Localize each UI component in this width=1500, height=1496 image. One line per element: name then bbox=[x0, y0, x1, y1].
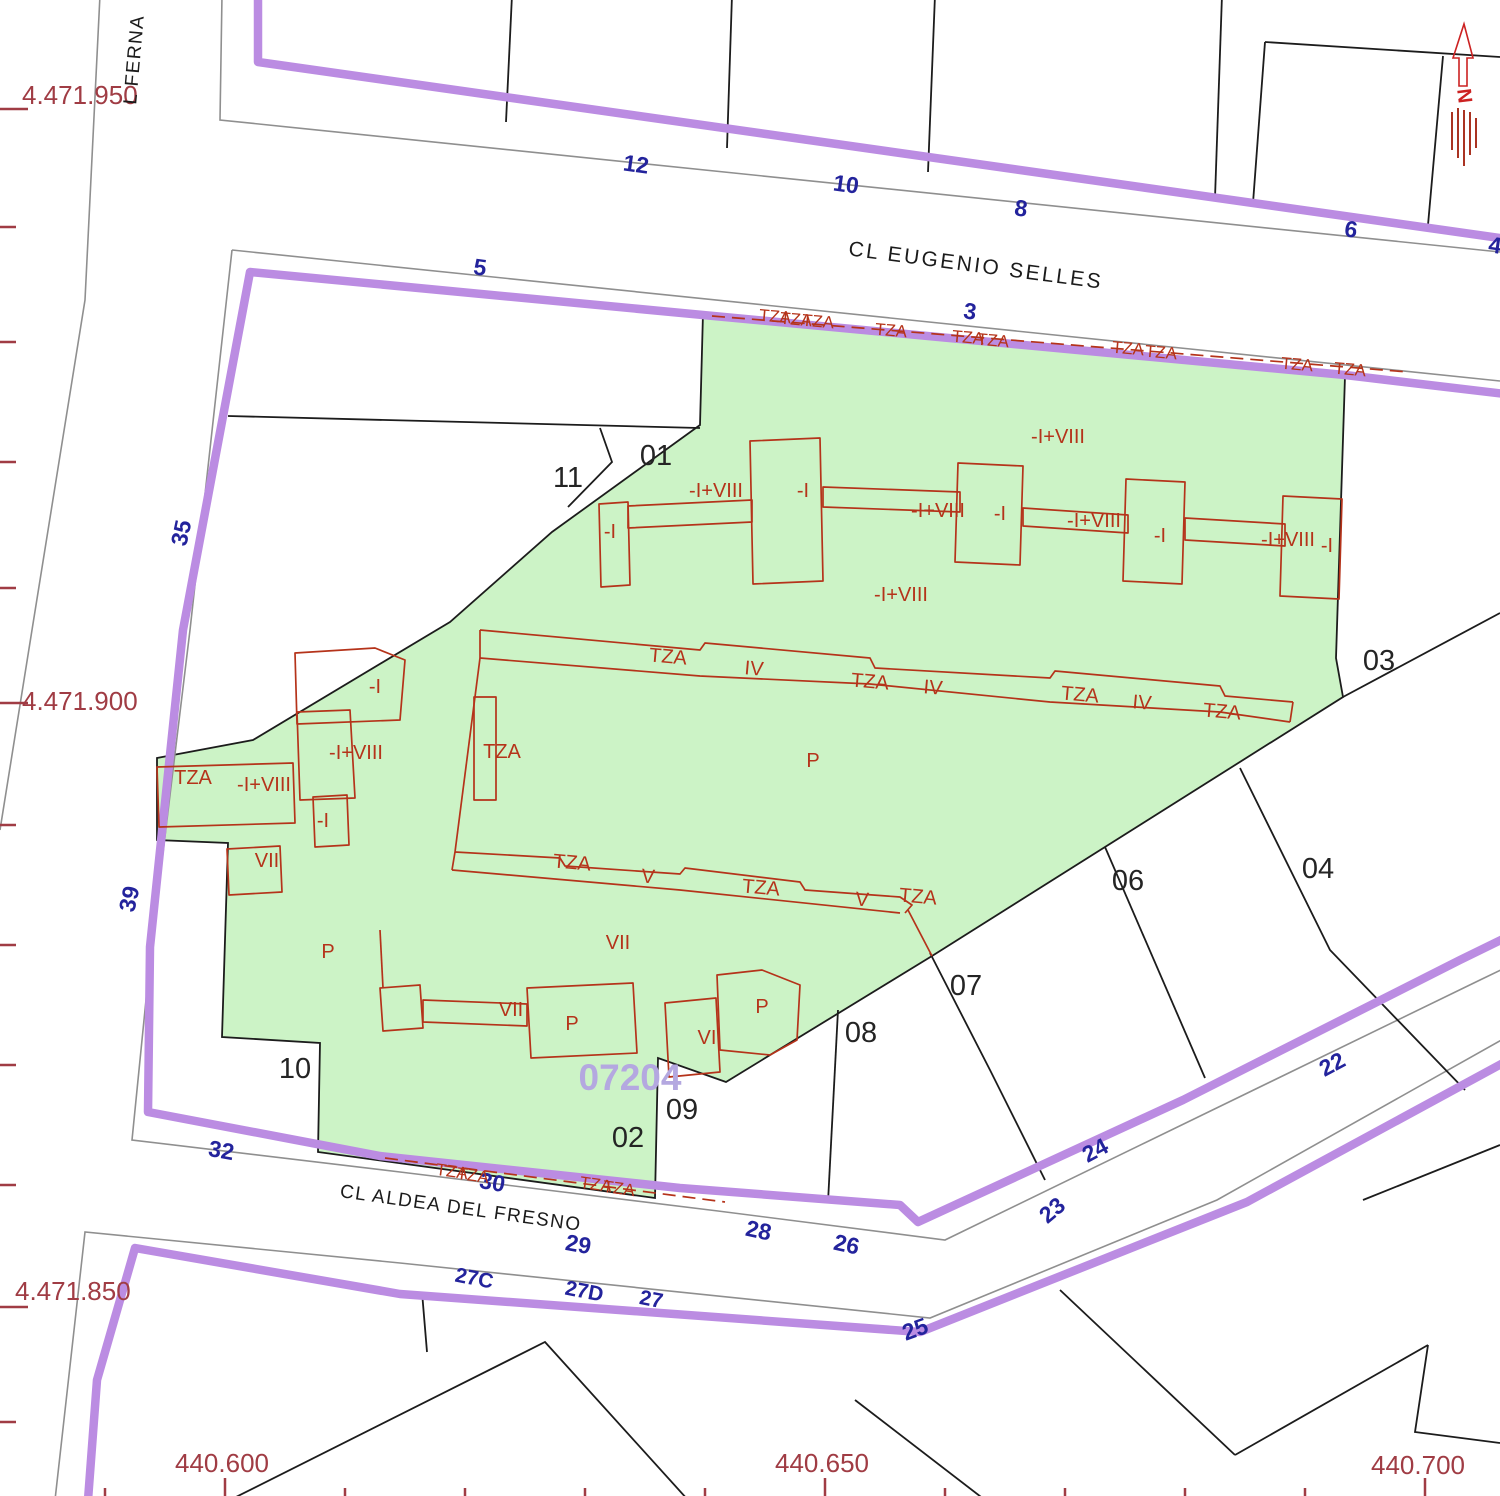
parcel-number-02: 02 bbox=[612, 1122, 644, 1154]
building-label: -I+VIII bbox=[1261, 529, 1315, 551]
parcel-number-10: 10 bbox=[279, 1053, 311, 1085]
parcel-number-09: 09 bbox=[666, 1094, 698, 1126]
parcel-line bbox=[1363, 1145, 1500, 1200]
building-label: -I+VIII bbox=[911, 500, 965, 522]
building-label: -I+VIII bbox=[1031, 426, 1085, 448]
address-number: 12 bbox=[622, 149, 651, 178]
building-label: TZA bbox=[898, 884, 938, 909]
address-number: 27D bbox=[563, 1277, 605, 1307]
building-label: VI bbox=[698, 1027, 717, 1049]
terrace-label: TZA bbox=[1144, 342, 1178, 364]
building-label: -I bbox=[1154, 525, 1166, 547]
address-number: 26 bbox=[831, 1229, 861, 1260]
street-name-eugenio-selles: CL EUGENIO SELLES bbox=[847, 237, 1104, 293]
building-label: P bbox=[755, 996, 768, 1018]
north-arrow: N bbox=[1452, 24, 1476, 166]
parcel-line bbox=[230, 1342, 688, 1496]
terrace-label: TZA bbox=[976, 330, 1010, 352]
building-label: IV bbox=[923, 676, 944, 700]
coordinate-label-x: 440.600 bbox=[175, 1448, 269, 1478]
building-label: -I+VIII bbox=[237, 774, 291, 796]
street-name-fernan: L FERNA bbox=[120, 14, 149, 106]
parcel-line bbox=[1253, 42, 1265, 203]
address-number: 6 bbox=[1343, 215, 1359, 243]
parcel-line bbox=[422, 1292, 427, 1352]
building-label: -I+VIII bbox=[329, 742, 383, 764]
terrace-label: TZA bbox=[801, 311, 835, 333]
address-number: 3 bbox=[962, 297, 978, 325]
parcel-line bbox=[1265, 42, 1500, 57]
parcel-number-11: 11 bbox=[553, 462, 583, 494]
building-label: V bbox=[640, 865, 656, 888]
building-label: TZA bbox=[174, 767, 212, 789]
boundary-south-block bbox=[88, 1062, 1500, 1496]
building-label: TZA bbox=[552, 850, 592, 875]
building-label: -I+VIII bbox=[689, 480, 743, 502]
address-number: 22 bbox=[1315, 1047, 1350, 1082]
parcel-line bbox=[1415, 1345, 1500, 1443]
building-label: -I+VIII bbox=[874, 584, 928, 606]
north-arrow-hatch bbox=[1452, 108, 1476, 166]
building-label: IV bbox=[744, 657, 765, 681]
parcel-number-06: 06 bbox=[1112, 865, 1144, 897]
building-label: P bbox=[565, 1013, 578, 1035]
address-number: 27C bbox=[453, 1264, 495, 1294]
terrace-label: TZA bbox=[1333, 359, 1367, 381]
parcel-number-01: 01 bbox=[640, 440, 672, 472]
parcel-id-label: 07204 bbox=[579, 1057, 682, 1098]
address-number: 27 bbox=[638, 1286, 665, 1313]
building-label: -I bbox=[317, 810, 329, 832]
parcel-number-08: 08 bbox=[845, 1017, 877, 1049]
building-label: VII bbox=[499, 999, 523, 1021]
building-label: -I bbox=[369, 676, 381, 698]
parcel-line bbox=[928, 0, 935, 172]
address-number: 23 bbox=[1034, 1192, 1070, 1228]
building-label: TZA bbox=[741, 875, 781, 900]
building-label: TZA bbox=[1060, 682, 1100, 707]
coordinate-label-x: 440.700 bbox=[1371, 1450, 1465, 1480]
address-number: 28 bbox=[743, 1215, 774, 1246]
terrace-label: TZA bbox=[456, 1164, 491, 1187]
building-label: TZA bbox=[850, 669, 890, 694]
coordinate-label-y: 4.471.850 bbox=[15, 1276, 131, 1306]
north-letter: N bbox=[1452, 87, 1476, 104]
building-label: TZA bbox=[648, 644, 688, 669]
parcel-number-03: 03 bbox=[1363, 645, 1395, 677]
building-label: V bbox=[854, 888, 870, 911]
coordinate-label-x: 440.650 bbox=[775, 1448, 869, 1478]
parcel-number-07: 07 bbox=[950, 970, 982, 1002]
cadastral-map-page: N 4.471.950 4.471.900 4.471.850 440.600 … bbox=[0, 0, 1500, 1496]
terrace-label: TZA bbox=[1280, 354, 1314, 376]
address-number: 35 bbox=[166, 517, 197, 548]
building-label: -I bbox=[604, 521, 616, 543]
cadastral-map-canvas: N 4.471.950 4.471.900 4.471.850 440.600 … bbox=[0, 0, 1500, 1496]
terrace-label: TZA bbox=[1111, 338, 1145, 360]
terrace-label: TZA bbox=[874, 320, 908, 342]
address-number: 8 bbox=[1013, 194, 1029, 222]
building-label: -I bbox=[797, 480, 809, 502]
building-label: VII bbox=[606, 932, 630, 954]
building-label: TZA bbox=[483, 741, 521, 763]
parcel-number-04: 04 bbox=[1302, 853, 1334, 885]
address-number: 32 bbox=[207, 1135, 237, 1165]
parcel-line bbox=[930, 953, 1045, 1180]
building-label: TZA bbox=[1202, 699, 1242, 724]
parcel-line bbox=[855, 1400, 985, 1496]
coordinate-label-y: 4.471.900 bbox=[22, 686, 138, 716]
building-label: -I+VIII bbox=[1067, 510, 1121, 532]
parcel-line bbox=[1428, 56, 1443, 225]
building-label: VII bbox=[255, 850, 279, 872]
parcel-line bbox=[506, 0, 512, 122]
building-label: IV bbox=[1132, 691, 1153, 715]
building-label: -I bbox=[1321, 535, 1333, 557]
parcel-line bbox=[1215, 0, 1222, 198]
building-label: P bbox=[806, 750, 819, 772]
address-number: 29 bbox=[564, 1229, 594, 1259]
boundary-north-block bbox=[258, 0, 1500, 238]
parcel-line bbox=[828, 1010, 838, 1202]
parcel-line bbox=[1060, 1290, 1235, 1455]
building-label: P bbox=[321, 941, 334, 963]
parcel-line bbox=[228, 416, 700, 428]
address-number: 10 bbox=[832, 169, 861, 198]
address-number: 39 bbox=[114, 884, 145, 914]
parcel-line bbox=[1235, 1345, 1428, 1455]
building-label: -I bbox=[994, 503, 1006, 525]
